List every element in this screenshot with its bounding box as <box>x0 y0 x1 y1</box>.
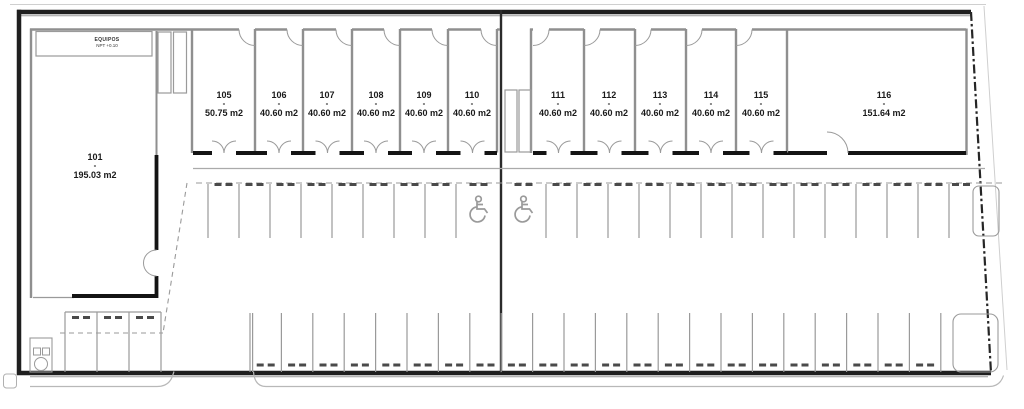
entry-door-arc-right <box>473 141 485 153</box>
unit-area: 151.64 m2 <box>839 108 929 119</box>
entry-door-arc-right <box>224 141 236 153</box>
utility-meter-switch-1 <box>34 348 41 355</box>
parking-striping <box>65 184 970 372</box>
utility-meter-switch-2 <box>43 348 50 355</box>
service-shaft-1 <box>158 32 171 93</box>
entry-door-arc-left <box>212 141 224 153</box>
equipment-room-level: NPT +0.10 <box>70 43 144 48</box>
entry-door-arc-right <box>328 141 340 153</box>
curb-island-upper <box>973 186 999 236</box>
unit-label-separator: - <box>839 100 929 108</box>
entry-door-arc-right <box>376 141 388 153</box>
rear-door-arc <box>533 30 549 46</box>
unit-label-110: 110 - 40.60 m2 <box>427 90 517 119</box>
entry-door-arc-left <box>699 141 711 153</box>
rear-door-arc <box>384 30 400 46</box>
icon-head <box>521 196 527 202</box>
entry-door-arc-right <box>762 141 774 153</box>
unit-label-101: 101 - 195.03 m2 <box>50 152 140 181</box>
rear-door-arc <box>635 30 651 46</box>
door-arc-unit-116 <box>827 132 848 153</box>
entry-door-arc-right <box>559 141 571 153</box>
rear-door-arc <box>686 30 702 46</box>
unit-label-separator: - <box>716 100 806 108</box>
floor-plan: EQUIPOS NPT +0.10 101 - 195.03 m2105 - 5… <box>0 0 1024 409</box>
unit-label-separator: - <box>50 162 140 170</box>
rear-door-arc <box>336 30 352 46</box>
entry-door-arc-right <box>661 141 673 153</box>
unit-label-separator: - <box>427 100 517 108</box>
rear-door-arc <box>239 30 255 46</box>
unit-label-115: 115 - 40.60 m2 <box>716 90 806 119</box>
entry-door-arc-left <box>750 141 762 153</box>
entry-door-arc-left <box>547 141 559 153</box>
unit-area: 40.60 m2 <box>427 108 517 119</box>
icon-body <box>477 202 488 213</box>
utility-meter-dial <box>35 358 48 371</box>
rear-door-arc <box>287 30 303 46</box>
entry-door-arc-right <box>279 141 291 153</box>
rear-door-arc <box>584 30 600 46</box>
entry-door-arc-left <box>649 141 661 153</box>
plan-linework <box>0 0 1024 409</box>
entry-door-arc-left <box>598 141 610 153</box>
entry-door-arc-left <box>364 141 376 153</box>
rear-door-arc <box>481 30 497 46</box>
unit-label-116: 116 - 151.64 m2 <box>839 90 929 119</box>
curb-stub-bottom-left <box>4 374 17 388</box>
entry-door-arc-left <box>316 141 328 153</box>
rear-door-arc <box>432 30 448 46</box>
entry-door-arc-right <box>424 141 436 153</box>
accessible-parking-icon <box>470 196 487 222</box>
unit-area: 195.03 m2 <box>50 170 140 181</box>
icon-body <box>522 202 533 213</box>
entry-door-arc-left <box>461 141 473 153</box>
rear-door-arc <box>736 30 752 46</box>
entry-door-arc-right <box>610 141 622 153</box>
icon-head <box>476 196 482 202</box>
entry-door-arc-left <box>412 141 424 153</box>
service-shaft-2 <box>174 32 187 93</box>
accessible-parking-icon <box>515 196 532 222</box>
equipment-room-label: EQUIPOS NPT +0.10 <box>70 37 144 48</box>
unit-area: 40.60 m2 <box>716 108 806 119</box>
entry-door-arc-left <box>267 141 279 153</box>
door-arc-unit-101 <box>144 250 157 276</box>
setback-diagonal-dashed <box>163 183 187 333</box>
entry-door-arc-right <box>711 141 723 153</box>
